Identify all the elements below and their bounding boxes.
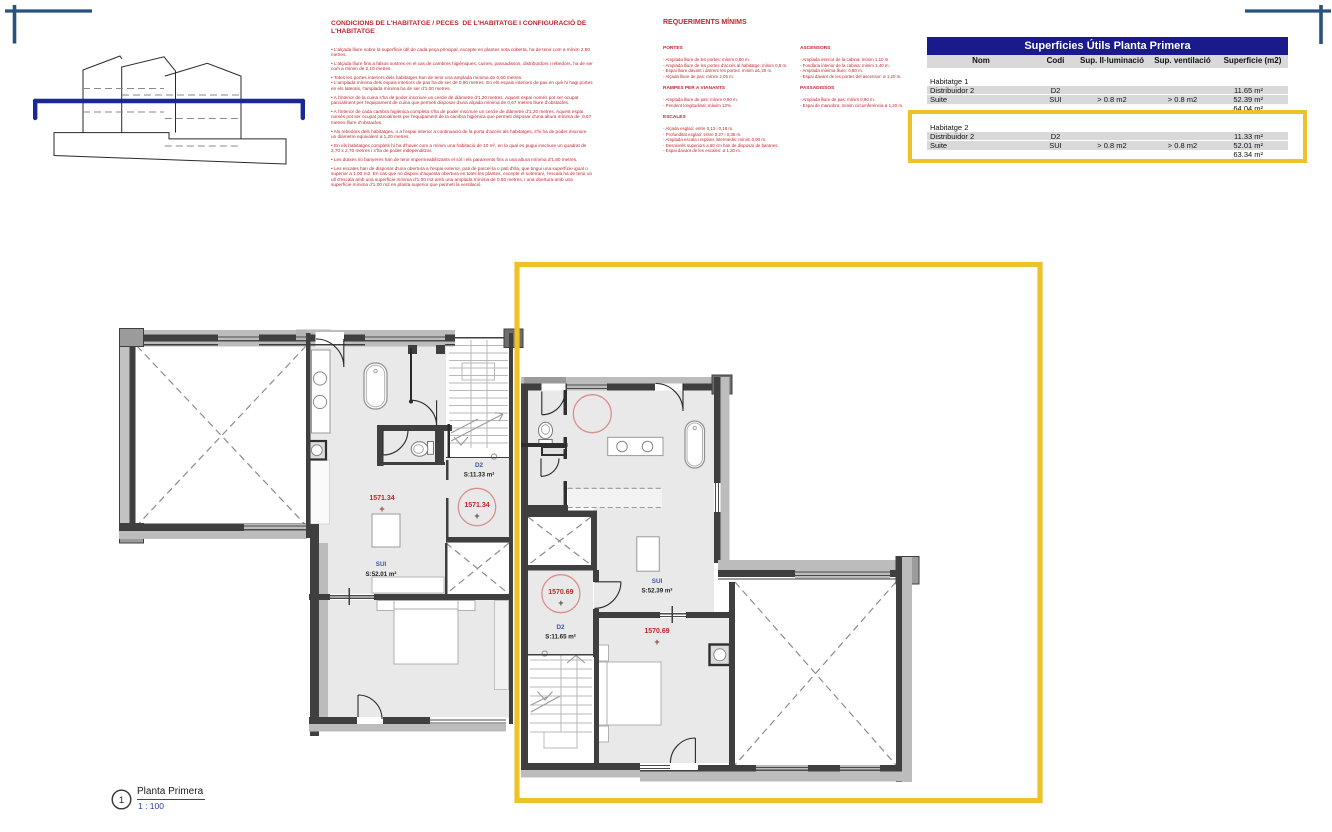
svg-text:+: + xyxy=(379,504,384,514)
svg-text:SUI: SUI xyxy=(376,561,387,568)
svg-text:+: + xyxy=(558,598,563,608)
svg-text:S:11.33 m²: S:11.33 m² xyxy=(464,472,495,479)
svg-text:S:52.39 m²: S:52.39 m² xyxy=(642,588,673,595)
svg-text:D2: D2 xyxy=(556,624,565,631)
svg-text:1571.34: 1571.34 xyxy=(464,502,489,509)
svg-text:S:52.01 m²: S:52.01 m² xyxy=(366,571,397,578)
svg-text:1: 1 xyxy=(119,795,124,806)
svg-text:D2: D2 xyxy=(475,462,484,469)
svg-text:+: + xyxy=(654,637,659,647)
svg-text:1570.69: 1570.69 xyxy=(548,589,573,596)
svg-text:S:11.65 m²: S:11.65 m² xyxy=(545,634,576,641)
svg-text:1570.69: 1570.69 xyxy=(644,628,669,635)
svg-text:SUI: SUI xyxy=(652,578,663,585)
svg-text:+: + xyxy=(474,511,479,521)
svg-text:1571.34: 1571.34 xyxy=(369,495,394,502)
